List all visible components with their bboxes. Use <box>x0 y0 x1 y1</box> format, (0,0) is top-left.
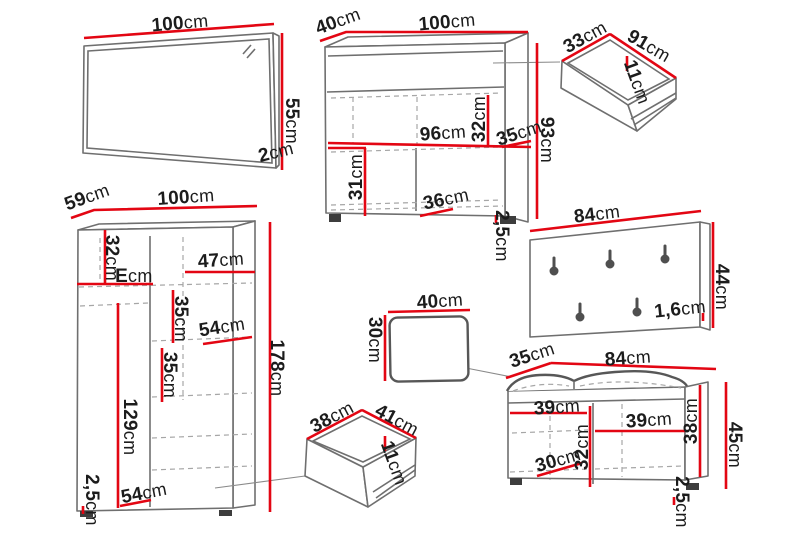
sideboard-drawer-height-label: 32cm <box>469 96 490 142</box>
bench-right-inner-width-label: 39cm <box>625 408 673 432</box>
wardrobe-shelf-gap-upper-label: 35cm <box>171 296 192 342</box>
bench-plinth-label: 2,5cm <box>672 476 693 528</box>
foot <box>329 214 341 222</box>
wardrobe-left-shelf-label: Ecm <box>115 266 153 287</box>
wardrobe-right-shelf-label: 47cm <box>197 248 245 272</box>
bench-depth-label: 35cm <box>507 338 558 372</box>
mirror-diagram: 100cm 55cm 2cm <box>83 10 303 170</box>
bench-height-label: 45cm <box>725 422 746 468</box>
coat-rack-height-label: 44cm <box>712 264 733 310</box>
wardrobe-hanging-height-label: 129cm <box>120 398 141 455</box>
wardrobe-diagram: 59cm 100cm 32cm Ecm 47cm 35cm 54cm 35cm … <box>62 179 305 526</box>
sideboard-diagram: 40cm 100cm 32cm 96cm 35cm 31cm 36cm 93cm… <box>313 3 560 262</box>
bench-left-inner-width-label: 39cm <box>533 395 581 419</box>
furniture-dimensions-diagram: 100cm 55cm 2cm 40cm 100cm 32cm 96cm 35cm <box>0 0 800 533</box>
foot <box>219 510 232 516</box>
sideboard-plinth-label: 2,5cm <box>492 210 513 262</box>
wardrobe-shelf-gap-lower-label: 35cm <box>160 352 181 398</box>
coat-rack-width-label: 84cm <box>573 201 622 227</box>
large-drawer-diagram: 33cm 91cm 11cm <box>560 17 676 131</box>
mirror-outline <box>83 33 276 168</box>
wardrobe-height-label: 178cm <box>267 339 288 396</box>
bench-side-inner-height-label: 38cm <box>681 398 702 444</box>
sideboard-inner-width-label: 96cm <box>419 121 467 145</box>
sideboard-height-label: 93cm <box>537 117 558 163</box>
sideboard-lower-height-label: 31cm <box>346 154 367 200</box>
mirror-height-label: 55cm <box>282 98 303 144</box>
leader-line <box>466 368 512 377</box>
bench-width-label: 84cm <box>604 346 652 370</box>
seat-cushion-outline <box>389 316 468 381</box>
mirror-width-label: 100cm <box>151 10 210 36</box>
seat-cushion-diagram: 40cm 30cm <box>365 289 513 382</box>
coat-rack-diagram: 84cm 44cm 1,6cm <box>530 201 733 337</box>
seat-cushion-width-label: 40cm <box>416 289 464 313</box>
shoe-bench-diagram: 35cm 84cm 39cm 39cm 32cm 38cm 30cm 45cm … <box>506 338 746 528</box>
wardrobe-plinth-label: 2,5cm <box>82 474 103 526</box>
seat-cushion-depth-label: 30cm <box>365 317 386 363</box>
wardrobe-width-label: 100cm <box>157 185 215 210</box>
small-drawer-diagram: 38cm 41cm 11cm <box>305 397 422 507</box>
foot <box>510 478 522 485</box>
diagram-canvas: 100cm 55cm 2cm 40cm 100cm 32cm 96cm 35cm <box>0 0 800 533</box>
